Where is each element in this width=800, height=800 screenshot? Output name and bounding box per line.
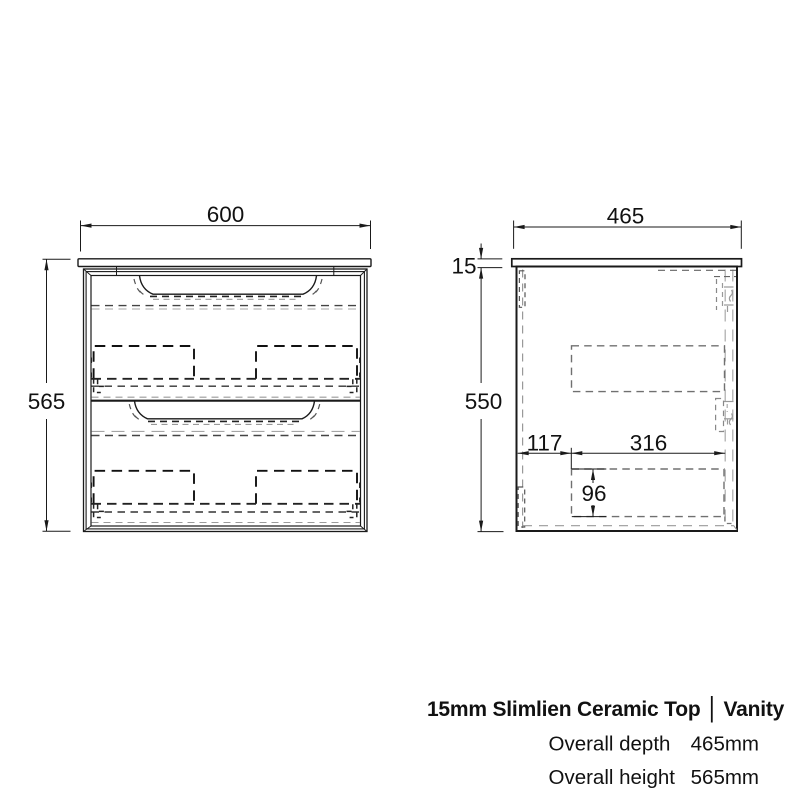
svg-text:316: 316	[630, 431, 668, 456]
svg-text:565mm: 565mm	[691, 766, 759, 789]
svg-text:117: 117	[527, 431, 563, 456]
svg-text:Vanity: Vanity	[724, 698, 785, 721]
svg-text:465mm: 465mm	[691, 733, 759, 756]
svg-text:565: 565	[28, 389, 66, 414]
svg-text:550: 550	[465, 389, 503, 414]
svg-text:Overall height: Overall height	[549, 766, 676, 789]
svg-text:15: 15	[451, 253, 476, 278]
svg-text:15mm Slimlien Ceramic Top: 15mm Slimlien Ceramic Top	[427, 698, 701, 721]
svg-text:Overall depth: Overall depth	[549, 733, 671, 756]
svg-text:465: 465	[607, 203, 645, 228]
svg-text:96: 96	[581, 481, 606, 506]
svg-text:600: 600	[207, 202, 245, 227]
